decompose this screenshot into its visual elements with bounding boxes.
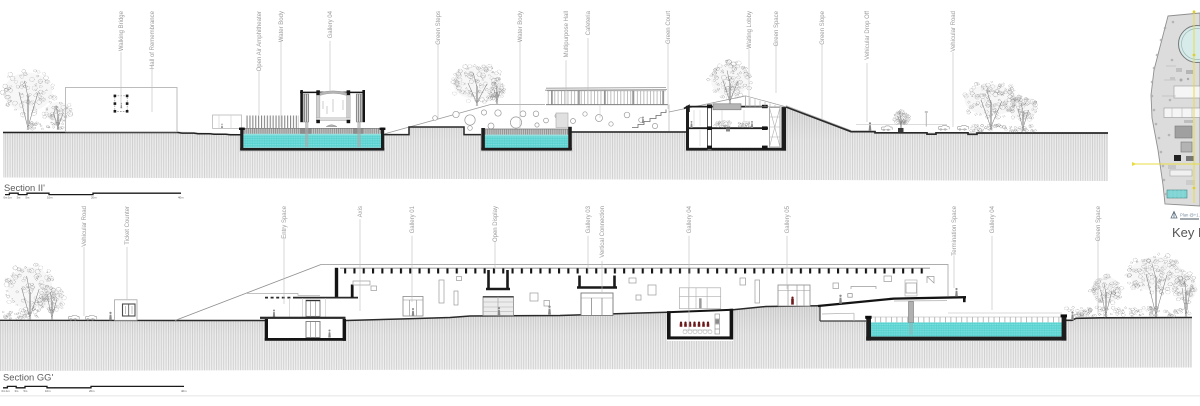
svg-text:10m: 10m [47,196,53,200]
svg-text:Gallery 03: Gallery 03 [586,205,592,233]
svg-text:Vertical Connection: Vertical Connection [600,206,606,258]
svg-text:10m: 10m [45,389,51,393]
svg-text:Green Slope: Green Slope [820,10,826,44]
svg-text:Multipurpose Hall: Multipurpose Hall [564,11,570,57]
svg-text:Vehicular Road: Vehicular Road [82,206,88,247]
svg-text:40m: 40m [181,389,187,393]
svg-text:Walking Bridge: Walking Bridge [119,10,125,51]
svg-text:Termination Space: Termination Space [952,205,958,255]
svg-text:40m: 40m [178,196,184,200]
svg-text:Waiting Lobby: Waiting Lobby [747,11,753,49]
svg-text:Section GG': Section GG' [3,372,53,383]
svg-text:Vehicular Drop Off: Vehicular Drop Off [865,11,871,60]
svg-text:1m: 1m [6,389,11,393]
svg-text:Gallery 01: Gallery 01 [410,205,416,233]
svg-text:Gallery 04: Gallery 04 [990,205,996,233]
svg-text:Open Display: Open Display [493,206,499,242]
svg-text:Entry Space: Entry Space [282,205,288,238]
svg-text:1m: 1m [8,196,13,200]
svg-text:Ticket Counter: Ticket Counter [125,206,131,245]
svg-text:Gallery 04: Gallery 04 [687,205,693,233]
svg-text:Vehicular Road: Vehicular Road [951,11,957,52]
svg-text:Gallery 05: Gallery 05 [785,205,791,233]
svg-text:Key Plan: Key Plan [1172,225,1200,240]
svg-text:Section II': Section II' [4,182,45,193]
svg-text:Green Court: Green Court [666,11,672,44]
svg-text:Axis: Axis [358,206,364,217]
svg-text:5m: 5m [26,196,31,200]
svg-text:Hall of Remembrance: Hall of Remembrance [150,10,156,69]
svg-text:Green Space: Green Space [774,10,780,46]
svg-text:Green Steps: Green Steps [436,11,442,45]
svg-text:Plan @+1.200 Lvl: Plan @+1.200 Lvl [1180,213,1200,218]
svg-text:Water Body: Water Body [518,11,524,42]
svg-text:Open Air Amphitheater: Open Air Amphitheater [257,11,263,71]
svg-text:Green Space: Green Space [1096,205,1102,241]
svg-text:5m: 5m [24,389,29,393]
svg-text:3m: 3m [15,389,20,393]
svg-text:Water Body: Water Body [279,11,285,42]
svg-text:Gallery 04: Gallery 04 [328,10,334,38]
svg-text:20m: 20m [89,389,95,393]
svg-text:Cafeteria: Cafeteria [586,10,592,35]
svg-text:3m: 3m [17,196,22,200]
svg-text:20m: 20m [91,196,97,200]
